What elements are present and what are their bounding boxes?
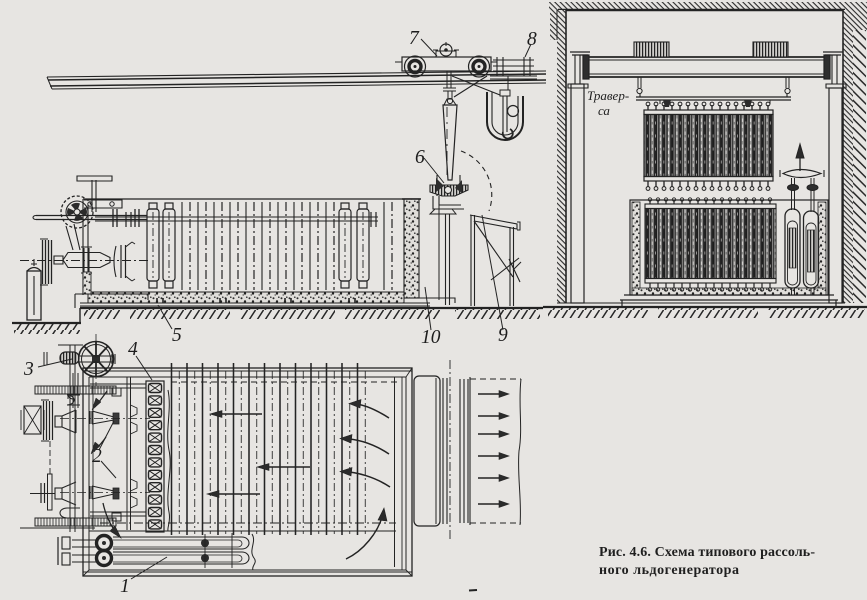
svg-text:Рис. 4.6. Схема типового р: Рис. 4.6. Схема типового рассоль- <box>599 545 815 560</box>
svg-text:3: 3 <box>23 359 34 380</box>
svg-text:8: 8 <box>527 29 537 50</box>
svg-text:1: 1 <box>120 576 130 597</box>
svg-text:са: са <box>598 103 610 118</box>
svg-text:Травер-: Травер- <box>587 88 629 103</box>
svg-text:7: 7 <box>409 28 420 49</box>
svg-text:6: 6 <box>415 147 425 168</box>
svg-text:ного льдогенератора: ного льдогенератора <box>599 563 739 578</box>
svg-text:10: 10 <box>421 327 441 348</box>
svg-text:5: 5 <box>172 325 182 346</box>
